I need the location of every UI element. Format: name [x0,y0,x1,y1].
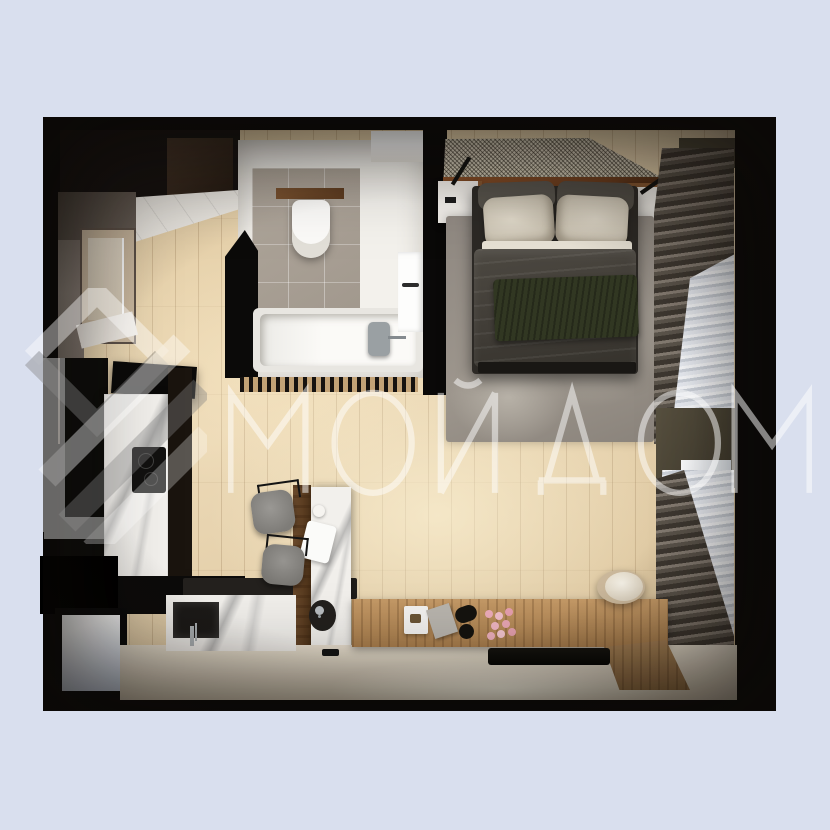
niche-faucet [190,626,194,646]
bar-stool-2 [260,543,305,587]
green-throw [493,275,639,342]
remote [322,649,339,656]
wood-sideboard [352,599,668,647]
tub-spout [388,336,406,339]
door-handle [402,283,419,287]
house-logo-icon [22,288,207,544]
entry-wall-notch [40,556,118,614]
backsplash-niche [173,602,219,638]
bathroom-wood-shelf [276,188,344,199]
bath-bedroom-wall [423,117,447,395]
nightstand-left-phone [445,197,456,203]
entry-door [62,615,120,691]
tv-screen [488,648,610,665]
table-lamp-base [459,624,474,639]
island-faucet [315,606,324,615]
island-sink [309,600,336,631]
pillow-right [555,194,630,248]
outlet-switch [410,614,421,623]
bathtub-inner [260,314,416,366]
bathroom-door [398,252,423,332]
top-vent-panel [371,131,423,162]
soap-dispenser [313,505,325,517]
flowers [485,610,493,618]
pouf-top [605,572,643,601]
toilet [292,200,330,258]
tub-faucet [368,322,390,356]
wardrobe-panel [167,138,233,196]
floorplan-render: МОЙ ДОМ [0,0,830,830]
watermark-text [228,372,812,497]
